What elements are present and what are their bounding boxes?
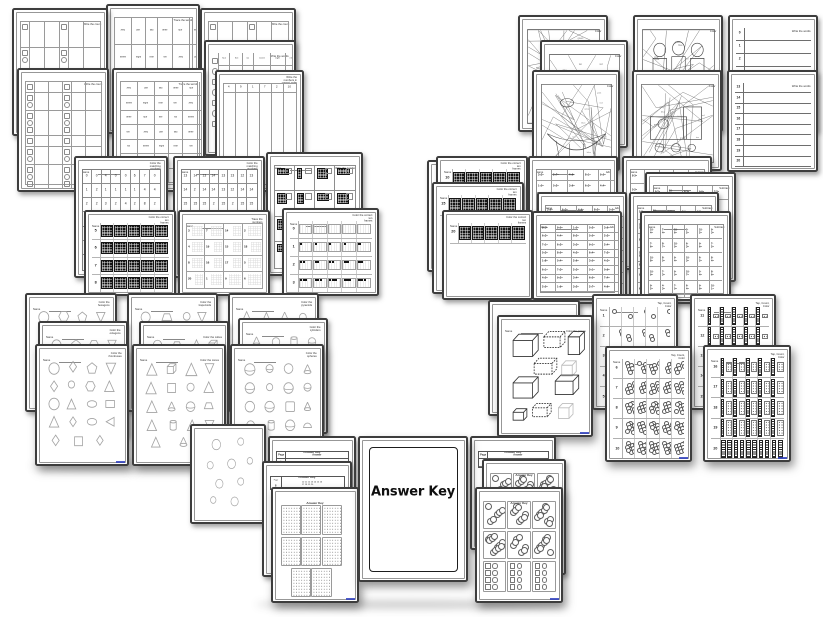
tens-rod: [778, 440, 783, 458]
answer-circle: [521, 514, 528, 521]
answer-box: [346, 168, 353, 175]
math-problem: 8+1=: [585, 173, 591, 176]
math-fact-cell: 4+5=: [541, 275, 557, 283]
tens-rod: [758, 358, 762, 376]
object-icon: [212, 58, 219, 65]
trace-number: 6: [244, 278, 246, 281]
row-number: 18: [737, 138, 741, 142]
object-icon: [27, 149, 33, 155]
ten-frame-block: [128, 260, 140, 272]
ten-frame-cell: [512, 223, 525, 243]
row-number: 10: [615, 447, 619, 451]
tens-rod: [746, 419, 750, 437]
math-problem: 4+6=: [569, 173, 575, 176]
table-header-label: Answer: [513, 453, 522, 456]
writing-row: 17: [735, 125, 811, 136]
math-problem: 2+2=: [604, 235, 610, 238]
math-problem: 4+4=: [600, 185, 606, 188]
tens-rod: [759, 440, 764, 458]
math-problem: 9+0=: [600, 173, 606, 176]
count-cell: [672, 419, 684, 438]
row-number-cell: 16: [735, 114, 744, 124]
math-fact-cell: 10-1=: [710, 281, 722, 295]
digit-cell: 6: [131, 170, 141, 184]
count-circle: [676, 389, 681, 394]
row-number-cell: 13: [735, 83, 744, 93]
tiny-answer-box: [492, 563, 498, 569]
credit-watermark: [116, 461, 125, 463]
count-circle: [651, 314, 656, 319]
math-fact-cell: 6+3=: [584, 181, 600, 193]
writing-row: 0: [736, 28, 811, 41]
object-icon: [27, 181, 33, 187]
math-fact-cell: 5+2=: [552, 181, 568, 193]
svg-text:red: red: [599, 102, 603, 104]
row-number: 5: [94, 229, 96, 233]
count-cell: [758, 378, 771, 397]
ten-frame-outline: [342, 278, 355, 289]
ten-frame-cell: [155, 223, 169, 240]
ten-frame-outline: [328, 242, 341, 253]
math-problem: 3+2=: [573, 285, 579, 288]
word-cell: one: [138, 82, 155, 97]
tens-rod: [740, 440, 745, 458]
math-fact-cell: 2+7=: [588, 283, 604, 291]
count-row: 16: [711, 358, 784, 378]
row-number: 15: [737, 107, 741, 111]
math-problem: 7-3=: [662, 270, 666, 275]
math-fact-cell: 7-6=: [649, 239, 661, 253]
ten-frame-block: [114, 225, 126, 237]
row-number: 2: [739, 58, 741, 62]
number-word: five: [234, 57, 237, 59]
page-inner-tr3: Colorredbluegreenpinkgraytanredbluegreen: [536, 74, 617, 168]
math-fact-cell: 2+6=: [572, 258, 588, 266]
math-fact-cell: 7+3=: [556, 266, 572, 274]
ones-units: [751, 362, 757, 372]
row-number-cell: 0: [290, 221, 299, 238]
word-cell: three: [169, 82, 184, 97]
ten-frame-cell: [357, 275, 372, 292]
worksheet-preview-collage: Write the countTrace the wordszeroonetwo…: [0, 0, 823, 617]
object-icon: [27, 95, 33, 101]
word-cell: three: [183, 125, 200, 140]
row-number-cell: 7: [613, 379, 623, 398]
math-problem: 9-3=: [711, 228, 716, 233]
ten-frame-outline: [313, 224, 326, 235]
count-cell: [647, 439, 659, 458]
number-word: seven: [259, 57, 265, 59]
tens-rod: [721, 358, 725, 376]
answer-circle: [490, 516, 497, 523]
page-content-tr7: 1314151617181920: [735, 83, 811, 165]
column-number-cell: 1: [248, 84, 259, 93]
write-cell: [86, 93, 100, 111]
page-bc4: Answer Key: [358, 436, 468, 582]
digit-cell: 12: [238, 170, 247, 184]
count-cell: [746, 439, 759, 458]
math-fact-cell: 10-3=: [685, 253, 697, 267]
word-cell: zero: [200, 140, 201, 155]
tens-rod: [771, 379, 775, 397]
math-fact-cell: 5+3=: [541, 250, 557, 258]
ten-frame-block: [155, 225, 168, 237]
math-problem: 7+3=: [557, 269, 563, 272]
tens-rod: [771, 358, 775, 376]
tens-rod: [720, 327, 724, 345]
math-problem: 2+5=: [542, 285, 548, 288]
digit: 0: [96, 174, 98, 178]
row-number-cell: 2: [736, 54, 745, 66]
ten-frame-cell: [313, 257, 328, 274]
count-row: 19: [711, 419, 784, 439]
picture-cell: [26, 93, 35, 111]
count-circle: [682, 422, 684, 427]
ones-units: [725, 334, 731, 339]
page-inner-ml6: Color the correct ten framesName0123: [286, 212, 376, 293]
shapes-art: [43, 357, 122, 459]
tiny-answer-box: [517, 563, 523, 569]
digit: 14: [240, 189, 244, 193]
ones-units: [764, 401, 770, 414]
answer-circle: [547, 549, 554, 556]
ten-frame-row: 6: [92, 240, 169, 258]
ten-frame-cell: [357, 239, 372, 256]
ten-frame-cell: [155, 240, 169, 257]
digit-cell: 1: [131, 184, 141, 198]
tiny-answer-box: [535, 563, 541, 569]
count-cell: [635, 379, 647, 398]
row-number-cell: 17: [711, 378, 721, 397]
math-fact-cell: 3+4=: [572, 275, 588, 283]
writing-row: 13: [735, 83, 811, 94]
digit: 0: [86, 174, 88, 178]
digit: 1: [86, 189, 88, 193]
writing-line: [745, 28, 811, 40]
trace-area: [229, 274, 240, 285]
write-cell: [35, 82, 49, 93]
trace-number: 16: [206, 261, 209, 264]
page-inner-mr10: SubtractName10-4=7-4=10-6=5-2=10-2=9-3=7…: [644, 215, 728, 298]
writing-row: 15: [735, 104, 811, 115]
trace-cell: 2: [243, 224, 262, 240]
object-icon: [249, 24, 255, 30]
word-cell: zero: [121, 82, 138, 97]
math-fact-cell: 6-2=: [698, 253, 710, 267]
count-cell: [708, 327, 720, 346]
count-circle: [674, 409, 679, 414]
count-row: 18: [711, 398, 784, 418]
write-cell: [49, 165, 63, 189]
digit-cell: 1: [121, 184, 131, 198]
answer-detail-row: [483, 561, 556, 586]
tens-rod: [765, 440, 770, 458]
trace-area: [214, 242, 222, 252]
ones-units: [713, 314, 719, 319]
word-cell: ten: [183, 140, 200, 155]
digit: 4: [154, 189, 156, 193]
ten-frame-block: [128, 277, 140, 289]
count-row: 1: [600, 307, 671, 327]
trace-area: [192, 242, 203, 252]
word-cell: eight: [138, 96, 155, 111]
object-icon: [64, 167, 70, 173]
count-cell: [634, 307, 646, 326]
math-fact-cell: 6+5=: [588, 275, 604, 283]
count-cell: [746, 419, 759, 438]
tiny-answer-box: [517, 570, 523, 576]
count-cell: [635, 439, 647, 458]
svg-text:green: green: [562, 106, 568, 108]
trace-number: 17: [225, 261, 228, 264]
number-word: three: [162, 29, 167, 31]
cover-title: Answer Key: [371, 484, 455, 499]
digit: 2: [194, 189, 196, 193]
count-row: 12: [698, 327, 769, 347]
math-fact-cell: 6-3=: [685, 239, 697, 253]
count-circle: [627, 425, 632, 430]
number-word: zero: [143, 131, 147, 133]
trace-area: [248, 226, 260, 236]
math-fact-cell: 2+7=: [552, 170, 568, 182]
ten-frame-cell: [141, 223, 155, 240]
ten-frame-block: [101, 225, 113, 237]
count-circle: [629, 389, 634, 394]
page-inner-bc3: Answer Key: [275, 491, 356, 600]
ten-frame-row: 1: [290, 239, 372, 257]
count-row: 11: [698, 307, 769, 327]
tiny-answer-box: [542, 577, 548, 583]
ones-units: [762, 314, 769, 319]
math-problem: 8-4=: [711, 256, 716, 261]
prisms-art: [505, 328, 586, 430]
math-problem: 3+6=: [569, 185, 575, 188]
digit: 4: [144, 189, 146, 193]
tens-rod: [746, 440, 751, 458]
math-problem: 3+2=: [538, 173, 544, 176]
circle-group-cell: [507, 531, 530, 560]
ten-frame-cell: [101, 240, 115, 257]
count-row: 9: [613, 419, 685, 439]
row-number-cell: 18: [711, 398, 721, 417]
count-cell: [646, 327, 658, 346]
object-icon: [27, 113, 33, 119]
count-circle: [653, 366, 658, 371]
digit: 14: [203, 189, 207, 193]
number-word: seven: [125, 102, 131, 104]
number-word: one: [194, 56, 196, 58]
digit: 13: [203, 174, 207, 178]
trace-area: [233, 242, 241, 252]
word-cell: seven: [138, 140, 155, 155]
count-cell: [610, 327, 622, 346]
ten-frame-cell: [141, 258, 155, 275]
svg-text:tan: tan: [695, 135, 699, 138]
ten-frame-cell: [101, 258, 115, 275]
column-number-cell: 10: [284, 84, 296, 93]
trace-number: 8: [188, 261, 190, 264]
ones-units: [726, 401, 732, 414]
digit-cell: 1: [111, 184, 121, 198]
row-number-cell: 19: [711, 419, 721, 438]
ten-frame-block: [128, 225, 140, 237]
count-cell: [733, 439, 746, 458]
number-chart: [291, 568, 311, 598]
digit: 1: [115, 189, 117, 193]
ten-frame-cell: [155, 258, 169, 275]
digit: 2: [154, 203, 156, 207]
math-problem: 0+9=: [604, 269, 610, 272]
circle-group-cell: [532, 531, 555, 560]
row-number-cell: 10: [613, 439, 623, 458]
ten-frame-cell: [328, 239, 343, 256]
tiny-answer-box: [535, 577, 541, 583]
page-content-bc3: [279, 501, 352, 596]
answer-circle: [520, 476, 527, 483]
digit-cell: 13: [200, 170, 209, 184]
digit: 1: [124, 189, 126, 193]
page-content-br1: [505, 328, 586, 430]
tens-rod: [721, 440, 726, 458]
number-word: two: [174, 131, 178, 133]
answer-circle: [505, 478, 512, 485]
math-fact-cell: 5+5=: [588, 233, 604, 241]
frame-dot: [300, 243, 302, 245]
digit: 14: [184, 189, 188, 193]
table-header-cell: Page: [277, 452, 287, 459]
math-fact-cell: 10-9=: [649, 267, 661, 281]
tens-rod: [756, 307, 760, 325]
table-header-label: Page: [480, 453, 486, 456]
object-icon: [64, 95, 70, 101]
count-cell: [744, 307, 756, 326]
column-number: 9: [240, 86, 242, 89]
digit-cell: 13: [182, 170, 191, 184]
math-problem: 10-8=: [650, 256, 654, 261]
math-fact-cell: 4+6=: [603, 283, 618, 291]
page-ml6: Color the correct ten framesName0123: [282, 208, 379, 296]
count-cell: [647, 379, 659, 398]
digit: 2: [96, 203, 98, 207]
count-circle: [677, 366, 682, 371]
credit-watermark: [778, 457, 787, 459]
math-fact-cell: 9-2=: [649, 281, 661, 295]
math-fact-cell: 8-5=: [661, 253, 673, 267]
writing-line: [744, 104, 811, 114]
digit-cell: 14: [210, 184, 219, 198]
digit-cell: 1: [83, 184, 93, 198]
ten-frame-cell: [357, 221, 372, 238]
count-circle: [667, 309, 670, 314]
math-problem: 7-6=: [650, 242, 654, 247]
math-fact-cell: 9-4=: [673, 253, 685, 267]
ten-frame-cell: [342, 239, 357, 256]
math-problem: 6+5=: [589, 277, 595, 280]
number-word: ten: [127, 131, 130, 133]
ten-frame-cell: [128, 240, 142, 257]
count-circle: [682, 364, 684, 369]
row-number-cell: 6: [92, 240, 101, 257]
ten-frame-row: 2: [290, 257, 372, 275]
math-problem: 3+5=: [589, 260, 595, 263]
tens-rod: [733, 379, 737, 397]
svg-text:red: red: [701, 115, 705, 117]
math-problem: 6+2=: [557, 244, 563, 247]
math-fact-cell: 3+6=: [568, 181, 584, 193]
math-problem: 5+3=: [542, 252, 548, 255]
math-problem: 9-2=: [650, 284, 654, 289]
count-cell: [721, 358, 734, 377]
row-number-cell: 18: [735, 135, 744, 145]
row-number: 6: [616, 366, 618, 370]
trace-area: [195, 274, 203, 285]
number-word: six: [247, 57, 250, 59]
ten-frame-block: [114, 260, 126, 272]
math-fact-cell: 2+2=: [603, 233, 618, 241]
write-cell: [30, 22, 45, 49]
ten-frame-cell: [299, 221, 314, 238]
word-cell: seven: [121, 96, 138, 111]
svg-text:blue: blue: [678, 44, 683, 47]
trace-cell: 19: [205, 240, 224, 256]
word-cell: zero: [138, 125, 155, 140]
frame-dot: [349, 279, 351, 281]
trace-number: 9: [225, 278, 227, 281]
page-br1: Color the prismsName: [497, 315, 593, 437]
detail-cell: [483, 561, 506, 593]
ten-frame-block: [101, 260, 113, 272]
ten-frame-cell: [342, 257, 357, 274]
math-fact-cell: 8+1=: [584, 170, 600, 182]
ten-frame-block: [114, 242, 126, 254]
object-icon: [22, 50, 28, 56]
answer-circle: [546, 520, 553, 527]
count-cell: [744, 327, 756, 346]
math-problem: 7+1=: [542, 244, 548, 247]
tens-rod: [721, 419, 725, 437]
tens-rod: [720, 307, 724, 325]
count-circle: [627, 337, 632, 342]
math-problem: 8+0=: [557, 252, 563, 255]
frame-dot: [344, 243, 346, 245]
count-cell: [647, 359, 659, 378]
page-inner-br3: Tap, Count, ColorName678910: [609, 350, 689, 459]
shapes-art: [198, 432, 259, 517]
row-number: 1: [603, 314, 605, 318]
ones-units: [726, 381, 732, 394]
count-cell: [708, 307, 720, 326]
math-problem: 6+4=: [589, 252, 595, 255]
ten-frame-block: [472, 226, 484, 240]
count-circle: [682, 448, 684, 453]
count-circle: [628, 402, 633, 407]
tens-rod: [733, 419, 737, 437]
ten-frame-block: [459, 226, 471, 240]
ones-units: [739, 381, 745, 394]
tens-rod: [727, 440, 732, 458]
trace-area: [211, 274, 222, 285]
row-number-cell: 8: [92, 275, 101, 292]
ones-units: [726, 362, 732, 372]
math-problem: 7+4=: [604, 277, 610, 280]
ten-frame-cell: [328, 275, 343, 292]
answer-circles-row: [483, 501, 556, 530]
math-fact-cell: 6+2=: [556, 241, 572, 249]
ones-units: [751, 381, 757, 394]
digit: 1: [105, 189, 107, 193]
answer-circle: [492, 475, 499, 482]
cover-frame: Answer Key: [369, 447, 458, 572]
